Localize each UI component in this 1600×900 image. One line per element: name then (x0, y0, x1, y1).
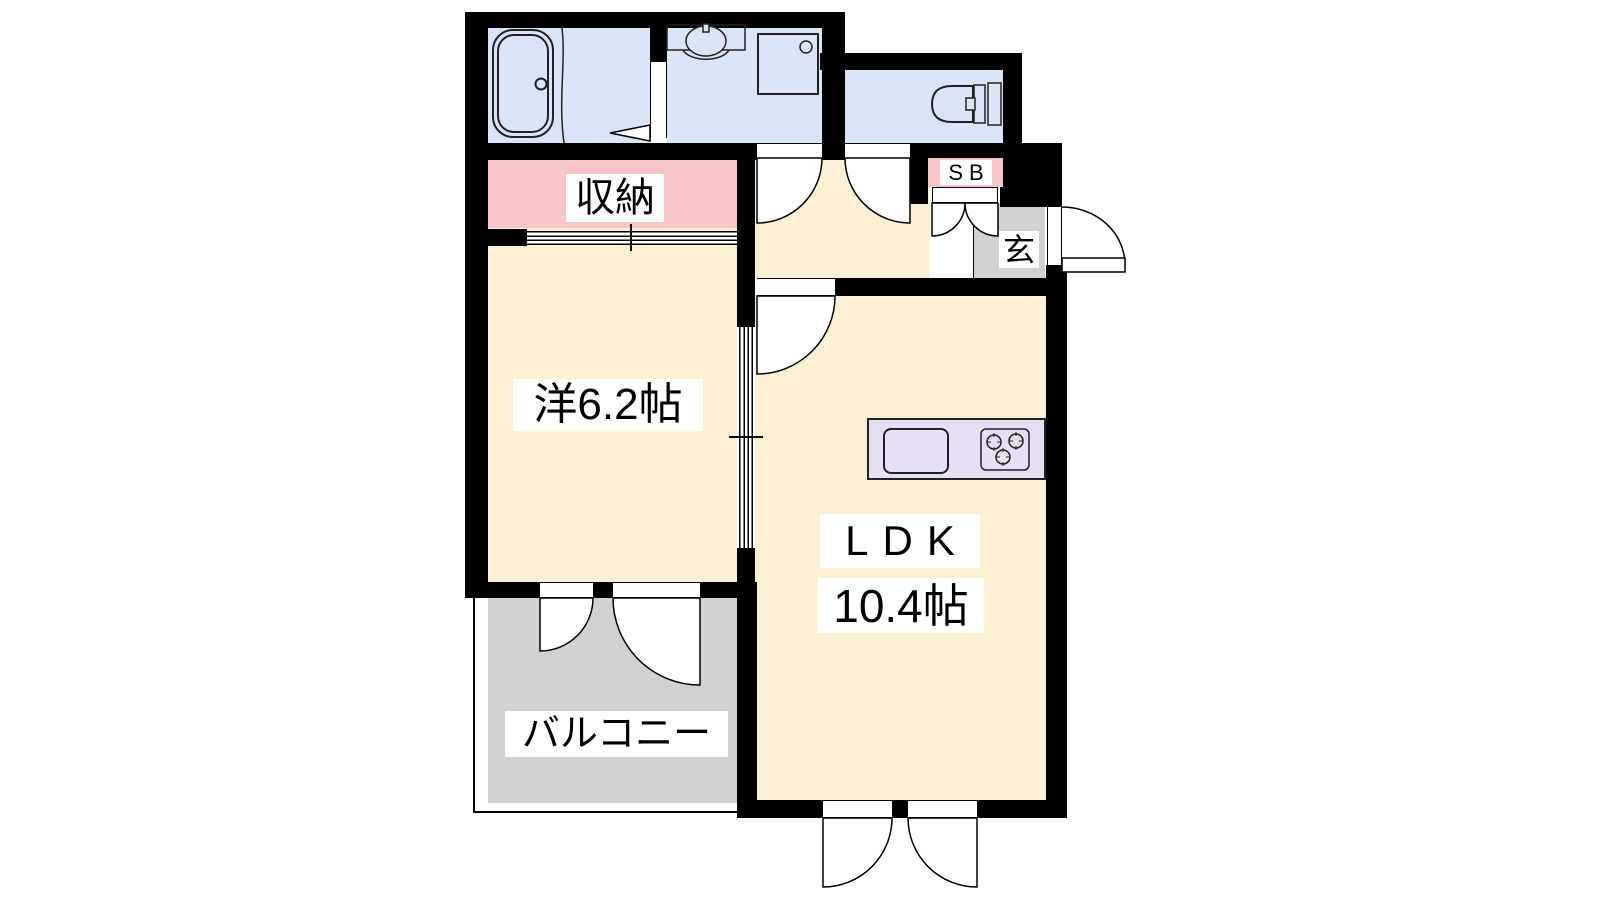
entrance-label-text: 玄 (1003, 234, 1035, 266)
storage-label: 収納 (566, 174, 664, 222)
balcony-left-door-swing (540, 598, 593, 651)
balcony-right-door-swing (613, 598, 700, 685)
ldk-south-left-door-swing (823, 818, 892, 887)
entrance-label: 玄 (999, 231, 1039, 268)
storage-label-text: 収納 (575, 178, 655, 218)
ldk-label-text: LDK (845, 520, 969, 562)
western-room-label-text: 洋6.2帖 (533, 383, 682, 427)
toilet-door-swing (845, 158, 910, 223)
bathtub-icon (493, 30, 553, 137)
western-room-label: 洋6.2帖 (513, 379, 703, 431)
gas-stove-icon (981, 429, 1029, 470)
shoe-box-right-door-swing (965, 203, 998, 236)
fixture-layer (0, 0, 1600, 900)
balcony-label-text: バルコニー (522, 715, 711, 753)
ldk-size-label: 10.4帖 (818, 578, 984, 633)
shoe-box-label-text: SB (948, 162, 989, 184)
shoe-box-left-door-swing (932, 203, 965, 236)
bathroom-door-icon (610, 125, 650, 141)
ldk-door-swing (757, 296, 835, 374)
washing-machine-pan-icon (758, 34, 818, 94)
ldk-size-text: 10.4帖 (833, 583, 969, 629)
ldk-label: LDK (820, 514, 980, 568)
floor-plan: 収納 洋6.2帖 LDK 10.4帖 バルコニー 玄 SB (0, 0, 1600, 900)
bath-floor-curve (562, 28, 564, 143)
balcony-label: バルコニー (505, 711, 728, 757)
toilet-icon (932, 83, 1001, 125)
shoe-box-label: SB (940, 160, 992, 185)
ldk-south-right-door-swing (908, 818, 977, 887)
entrance-door-icon (1062, 207, 1125, 272)
washroom-door-swing (757, 158, 822, 223)
vanity-sink-icon (667, 24, 745, 59)
